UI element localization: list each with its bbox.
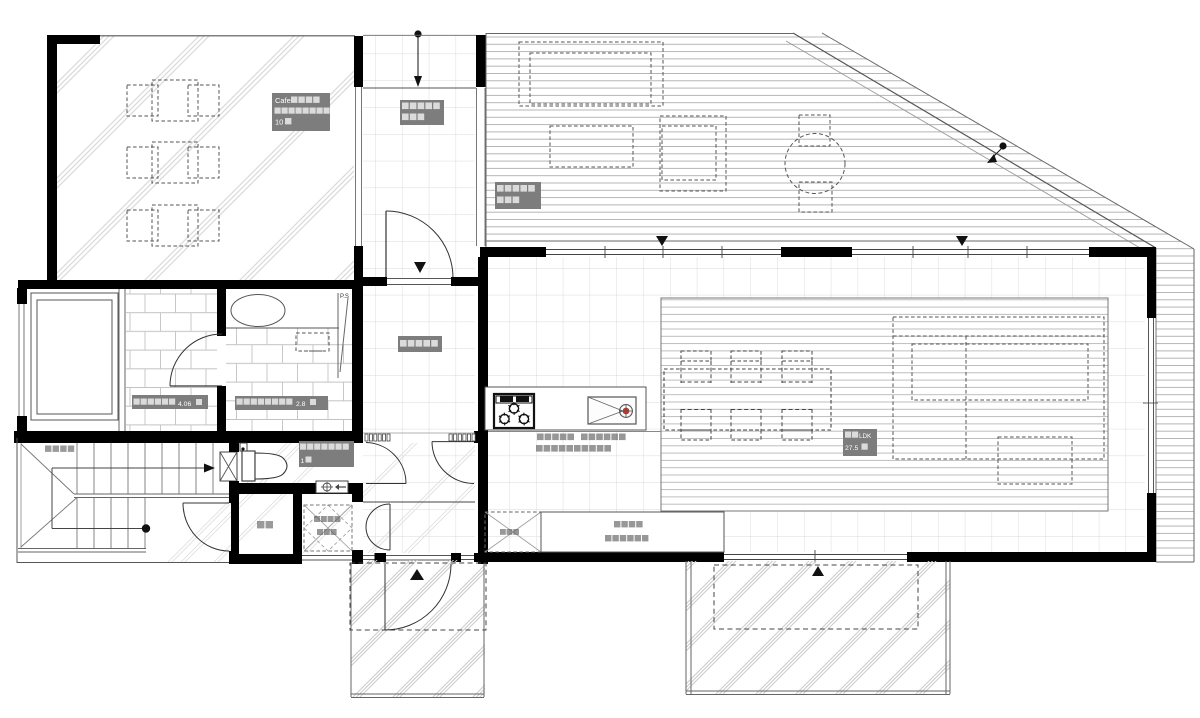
svg-text:P.S: P.S bbox=[340, 294, 349, 300]
svg-text:10: 10 bbox=[275, 118, 283, 127]
svg-text:LDK: LDK bbox=[859, 433, 872, 440]
svg-text:27.5: 27.5 bbox=[845, 445, 858, 452]
svg-text:1: 1 bbox=[301, 458, 305, 465]
svg-text:2.8: 2.8 bbox=[296, 401, 306, 408]
svg-text:4.06: 4.06 bbox=[178, 401, 191, 408]
svg-text:Cafe: Cafe bbox=[275, 96, 291, 105]
